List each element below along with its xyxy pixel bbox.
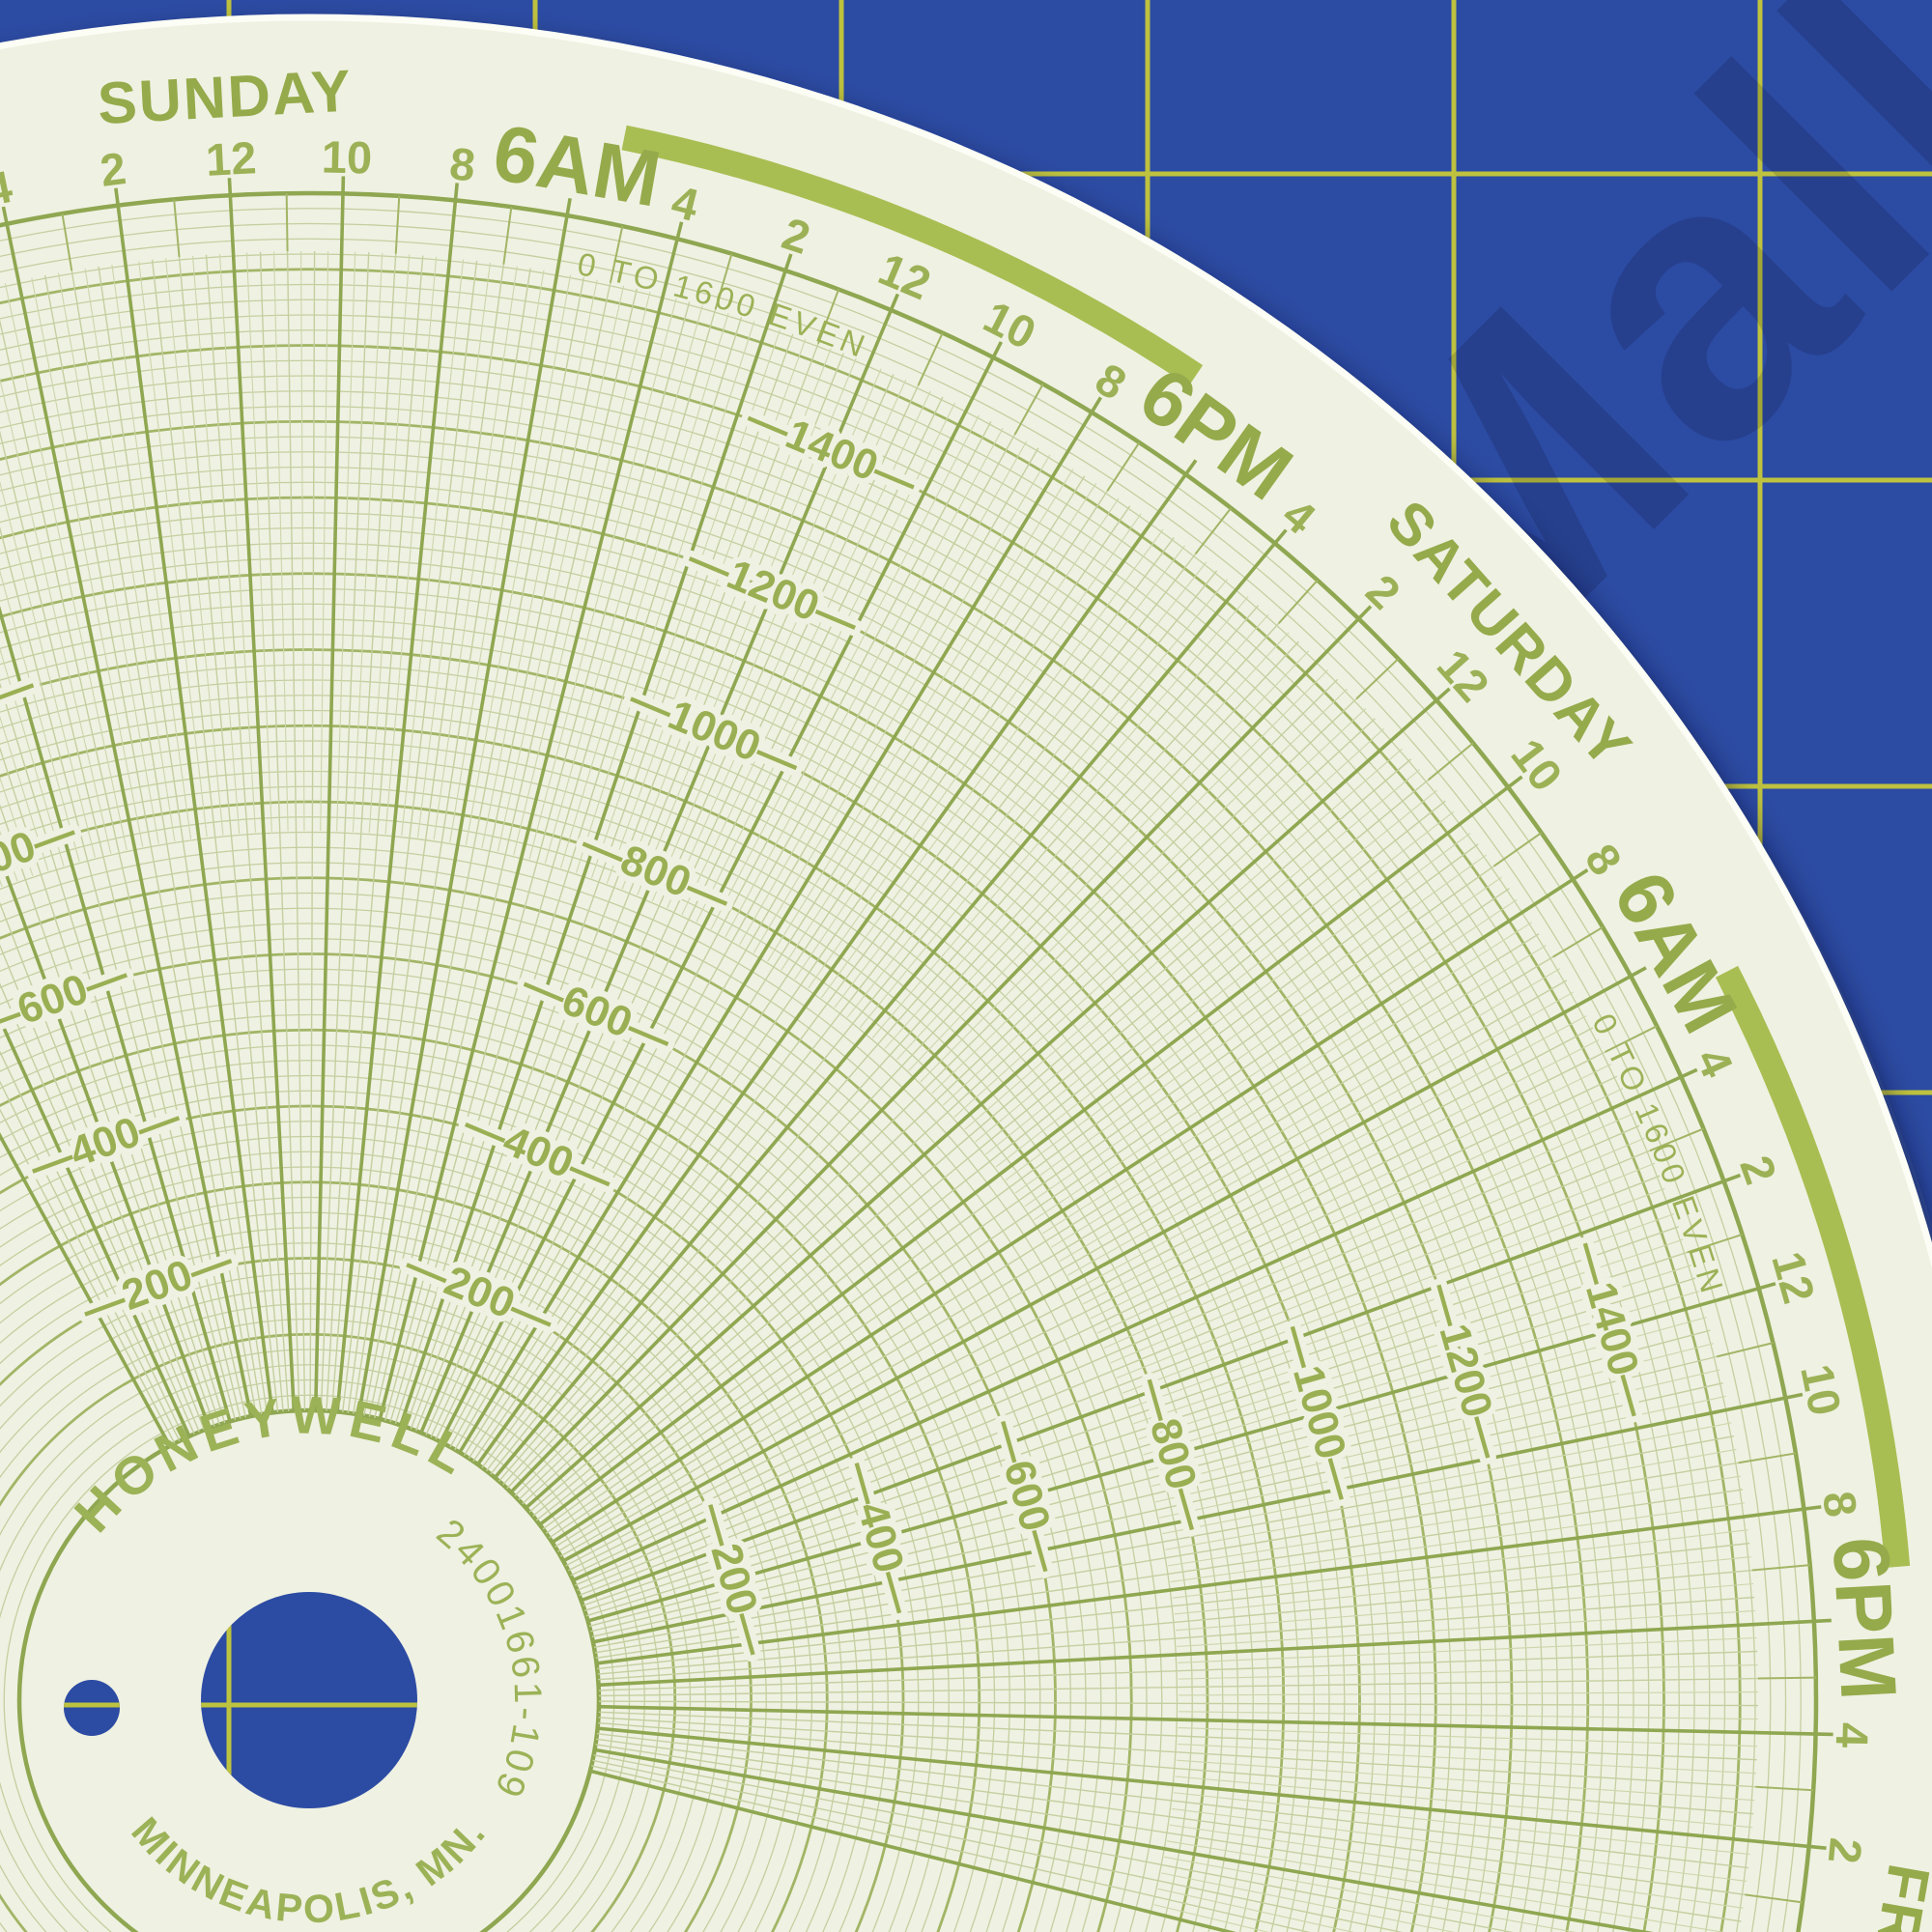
photo-stage: On Time Mall —200——400——600——800——1000——… (0, 0, 1932, 1932)
rim-time-label: 4 (1827, 1722, 1879, 1748)
rim-time-label: 10 (1791, 1360, 1851, 1420)
center-hole (201, 1592, 417, 1808)
grid-radial (1758, 1678, 1816, 1679)
rim-time-label: 10 (321, 130, 373, 183)
rim-time-label: 2 (1819, 1835, 1872, 1865)
rim-day-label: SUNDAY (96, 57, 354, 136)
rim-time-label-big: 6PM (1816, 1535, 1913, 1702)
rim-time-label: 12 (205, 131, 258, 185)
grid-radial (287, 193, 288, 251)
scene-svg: On Time Mall —200——400——600——800——1000——… (0, 0, 1932, 1932)
rim-time-label: 8 (447, 137, 477, 190)
drive-hole (64, 1680, 120, 1736)
